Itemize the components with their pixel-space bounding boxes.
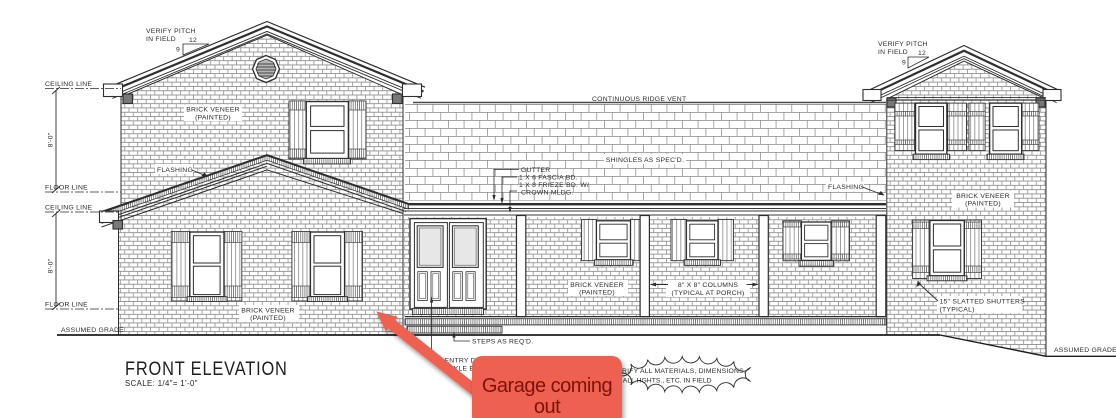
svg-text:12: 12	[918, 50, 926, 57]
svg-text:(PAINTED): (PAINTED)	[250, 315, 286, 322]
svg-text:BRICK VENEER: BRICK VENEER	[570, 282, 624, 289]
svg-text:12: 12	[189, 37, 197, 44]
svg-text:FLASHING: FLASHING	[157, 167, 193, 174]
svg-text:STEPS AS REQ'D.: STEPS AS REQ'D.	[472, 339, 533, 346]
svg-text:BRICK VENEER: BRICK VENEER	[186, 107, 240, 114]
svg-text:FRONT ELEVATION: FRONT ELEVATION	[125, 358, 288, 380]
svg-text:CONTINUOUS RIDGE VENT: CONTINUOUS RIDGE VENT	[592, 96, 686, 103]
svg-text:FLASHING: FLASHING	[828, 184, 864, 191]
svg-text:VERIFY PITCH: VERIFY PITCH	[878, 41, 928, 48]
svg-text:9: 9	[176, 47, 180, 54]
svg-text:CEILING LINE: CEILING LINE	[45, 205, 92, 212]
svg-text:(TYPICAL): (TYPICAL)	[940, 306, 975, 313]
svg-text:ASSUMED GRADE: ASSUMED GRADE	[61, 327, 124, 334]
svg-text:15" SLATTED SHUTTERS: 15" SLATTED SHUTTERS	[940, 299, 1026, 306]
svg-text:BRICK VENEER: BRICK VENEER	[241, 307, 295, 314]
svg-text:8" X 8" COLUMNS: 8" X 8" COLUMNS	[678, 282, 739, 289]
svg-text:(PAINTED): (PAINTED)	[579, 290, 615, 297]
svg-text:(PAINTED): (PAINTED)	[195, 114, 231, 121]
svg-text:IN FIELD: IN FIELD	[146, 36, 176, 43]
svg-text:CEILING LINE: CEILING LINE	[45, 81, 92, 88]
svg-text:CROWN MLDG.: CROWN MLDG.	[521, 190, 574, 197]
svg-text:FLOOR LINE: FLOOR LINE	[45, 302, 88, 309]
svg-text:1 X 6 FASCIA BD.: 1 X 6 FASCIA BD.	[519, 175, 578, 182]
svg-text:SHINGLES AS SPEC'D.: SHINGLES AS SPEC'D.	[606, 157, 684, 164]
svg-text:1 X 8 FRIEZE BD. W/: 1 X 8 FRIEZE BD. W/	[519, 182, 589, 189]
svg-text:8'-0": 8'-0"	[48, 258, 55, 273]
svg-text:8'-0": 8'-0"	[48, 132, 55, 147]
svg-text:ASSUMED GRADE: ASSUMED GRADE	[1054, 347, 1116, 354]
svg-text:SCALE: 1/4"= 1'-0": SCALE: 1/4"= 1'-0"	[125, 379, 198, 388]
svg-text:ALL HGHTS., ETC. IN FIELD: ALL HGHTS., ETC. IN FIELD	[623, 377, 712, 384]
svg-text:(TYPICAL AT PORCH): (TYPICAL AT PORCH)	[671, 290, 744, 297]
svg-text:BRICK VENEER: BRICK VENEER	[956, 193, 1010, 200]
svg-text:VERIFY ALL MATERIALS, DIMENSIO: VERIFY ALL MATERIALS, DIMENSIONS,	[613, 368, 747, 375]
svg-text:VERIFY PITCH: VERIFY PITCH	[146, 28, 196, 35]
svg-text:9: 9	[902, 60, 906, 67]
svg-text:FLOOR LINE: FLOOR LINE	[45, 185, 88, 192]
svg-text:IN FIELD: IN FIELD	[878, 49, 908, 56]
svg-text:(PAINTED): (PAINTED)	[965, 201, 1001, 208]
svg-text:GUTTER: GUTTER	[521, 167, 550, 174]
